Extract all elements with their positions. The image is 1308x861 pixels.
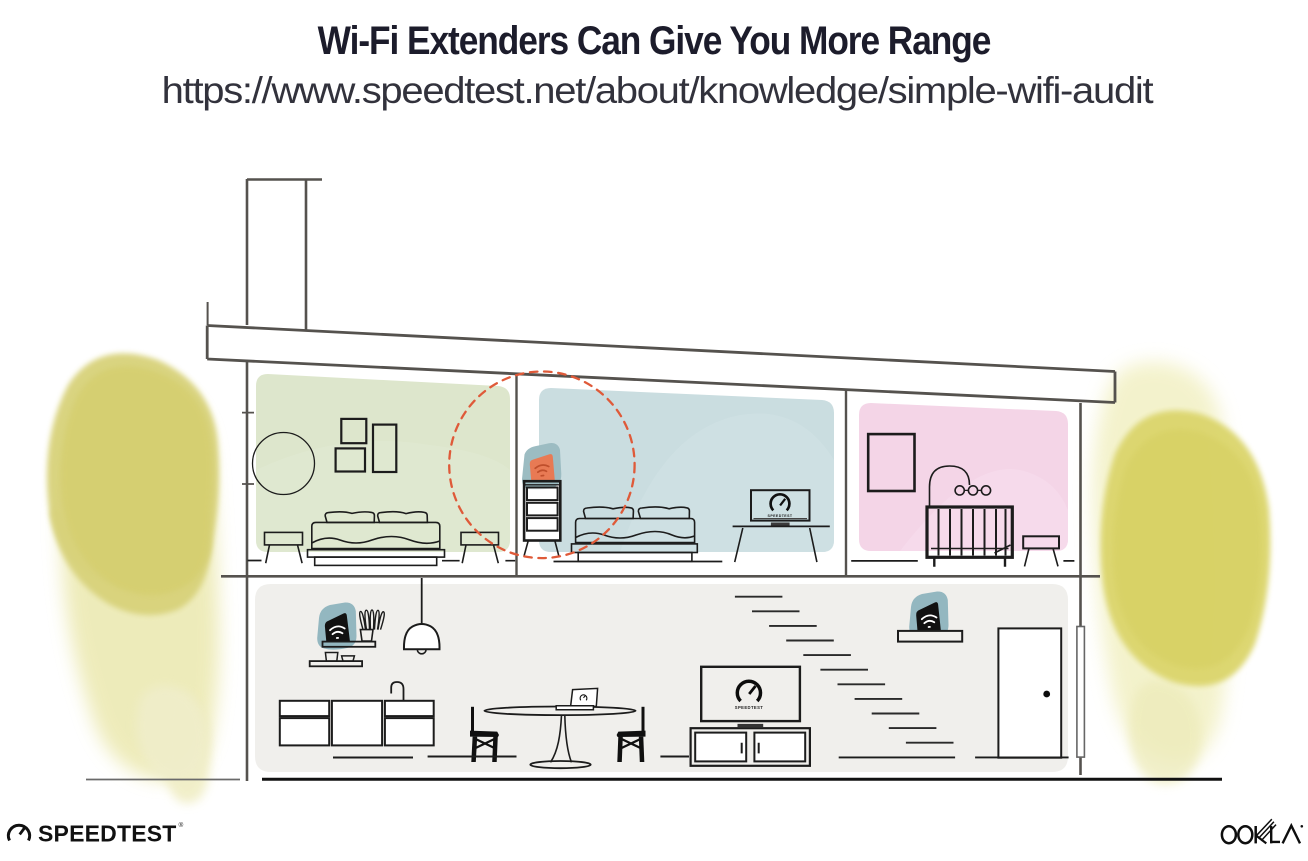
svg-text:®: ® [179, 821, 184, 829]
svg-text:SPEEDTEST: SPEEDTEST [735, 705, 764, 710]
svg-text:SPEEDTEST: SPEEDTEST [38, 821, 177, 847]
svg-text:SPEEDTEST: SPEEDTEST [768, 514, 793, 518]
